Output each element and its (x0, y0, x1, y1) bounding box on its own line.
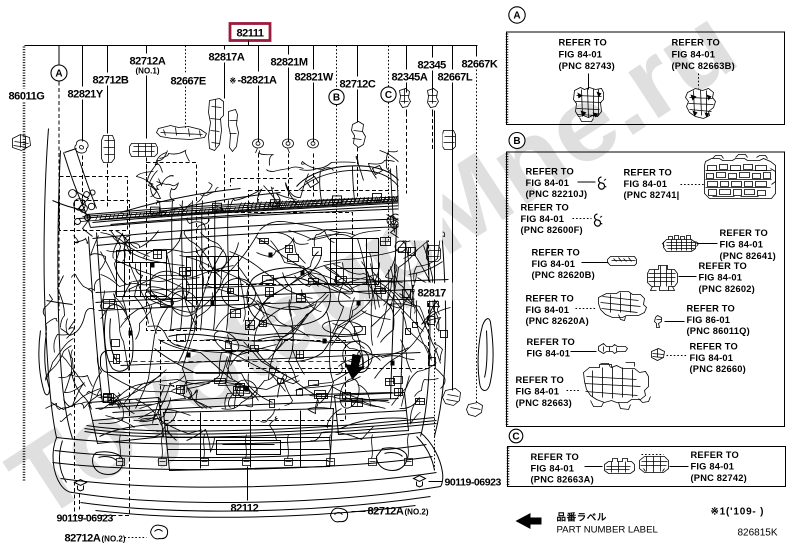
svg-text:82712A: 82712A (65, 533, 101, 545)
svg-text:82821M: 82821M (271, 57, 308, 69)
svg-text:REFER TO: REFER TO (532, 248, 580, 258)
svg-text:FIG 84-01: FIG 84-01 (690, 353, 734, 363)
svg-text:FIG 84-01: FIG 84-01 (521, 214, 565, 224)
svg-text:82345: 82345 (418, 60, 447, 72)
svg-text:82712C: 82712C (340, 79, 376, 91)
svg-text:(PNC 82663): (PNC 82663) (516, 398, 572, 408)
svg-text:(PNC 82743): (PNC 82743) (559, 61, 615, 71)
svg-text:(PNC 82210J): (PNC 82210J) (526, 189, 588, 199)
svg-text:826815K: 826815K (738, 528, 778, 539)
svg-text:REFER TO: REFER TO (691, 450, 739, 460)
svg-text:REFER TO: REFER TO (690, 342, 738, 352)
svg-text:82712B: 82712B (93, 75, 129, 87)
svg-text:REFER TO: REFER TO (521, 203, 569, 213)
svg-text:REFER TO: REFER TO (559, 38, 607, 48)
svg-text:※1('109- ): ※1('109- ) (711, 507, 765, 518)
svg-text:FIG 84-01: FIG 84-01 (720, 240, 764, 250)
svg-text:FIG 84-01: FIG 84-01 (672, 50, 716, 60)
svg-text:86011G: 86011G (9, 91, 45, 103)
svg-text:品番ラベル: 品番ラベル (557, 512, 608, 524)
svg-text:82821W: 82821W (295, 72, 334, 84)
svg-text:C: C (385, 90, 392, 101)
svg-text:FIG 84-01: FIG 84-01 (526, 305, 570, 315)
svg-text:FIG 84-01: FIG 84-01 (526, 178, 570, 188)
svg-text:FIG 86-01: FIG 86-01 (687, 315, 731, 325)
svg-text:82712A: 82712A (368, 506, 404, 518)
svg-text:(PNC 82602): (PNC 82602) (699, 284, 755, 294)
svg-text:REFER TO: REFER TO (526, 294, 574, 304)
svg-text:(PNC 82620B): (PNC 82620B) (532, 270, 595, 280)
svg-text:82821Y: 82821Y (68, 89, 104, 101)
svg-text:REFER TO: REFER TO (526, 167, 574, 177)
svg-text:(PNC 82741|: (PNC 82741| (624, 190, 680, 200)
svg-text:82667E: 82667E (171, 76, 206, 88)
svg-text:(PNC 82663B): (PNC 82663B) (672, 61, 735, 71)
svg-text:REFER TO: REFER TO (672, 38, 720, 48)
svg-text:(PNC 82641): (PNC 82641) (720, 251, 776, 261)
svg-text:82817: 82817 (418, 288, 447, 300)
svg-text:(NO.1): (NO.1) (136, 67, 160, 76)
svg-text:-82821A: -82821A (238, 75, 278, 87)
svg-text:(PNC 82620A): (PNC 82620A) (526, 316, 589, 326)
svg-text:82667K: 82667K (462, 59, 498, 71)
svg-text:FIG 84-01: FIG 84-01 (624, 179, 668, 189)
svg-text:90119-06923: 90119-06923 (445, 477, 502, 489)
svg-text:(NO.2): (NO.2) (102, 535, 126, 544)
svg-text:82111: 82111 (236, 28, 263, 40)
svg-text:FIG 84-01: FIG 84-01 (559, 50, 603, 60)
svg-text:REFER TO: REFER TO (687, 304, 735, 314)
svg-text:82112: 82112 (231, 503, 259, 515)
svg-text:(NO.2): (NO.2) (405, 508, 429, 517)
svg-text:(PNC 82660): (PNC 82660) (690, 364, 746, 374)
svg-text:FIG 84-01: FIG 84-01 (691, 462, 735, 472)
svg-text:FIG 84-01: FIG 84-01 (699, 273, 743, 283)
svg-text:82667L: 82667L (438, 72, 473, 84)
svg-text:FIG 84-01: FIG 84-01 (531, 464, 575, 474)
svg-text:REFER TO: REFER TO (624, 168, 672, 178)
svg-text:B: B (333, 93, 340, 104)
svg-text:82345A: 82345A (392, 72, 428, 84)
svg-text:REFER TO: REFER TO (527, 337, 575, 347)
svg-text:82817A: 82817A (209, 52, 245, 64)
svg-text:A: A (55, 69, 62, 80)
svg-text:FIG 84-01: FIG 84-01 (516, 387, 560, 397)
svg-text:C: C (512, 432, 519, 443)
svg-text:(PNC 82600F): (PNC 82600F) (521, 225, 583, 235)
svg-text:REFER TO: REFER TO (720, 228, 768, 238)
svg-text:PART NUMBER LABEL: PART NUMBER LABEL (557, 525, 659, 536)
svg-text:※: ※ (230, 77, 237, 86)
svg-text:(PNC 82663A): (PNC 82663A) (531, 475, 594, 485)
svg-text:(PNC 82742): (PNC 82742) (691, 473, 747, 483)
svg-text:FIG 84-01: FIG 84-01 (532, 259, 576, 269)
svg-text:FIG 84-01: FIG 84-01 (527, 349, 571, 359)
svg-text:REFER TO: REFER TO (516, 375, 564, 385)
svg-text:90119-06923: 90119-06923 (57, 513, 114, 525)
svg-text:B: B (513, 136, 520, 147)
svg-text:(PNC 86011Q): (PNC 86011Q) (687, 326, 750, 336)
svg-text:A: A (513, 11, 520, 22)
svg-text:REFER TO: REFER TO (531, 452, 579, 462)
svg-text:REFER TO: REFER TO (699, 261, 747, 271)
